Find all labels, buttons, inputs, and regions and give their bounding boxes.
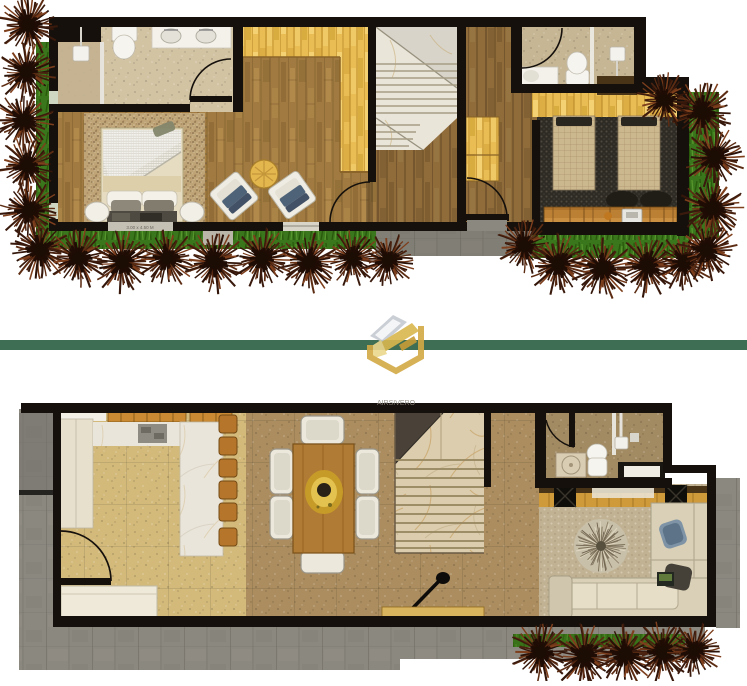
svg-text:AIRSIVERO: AIRSIVERO [377, 400, 416, 407]
svg-text:3.00 x 4.50 M: 3.00 x 4.50 M [126, 225, 154, 230]
